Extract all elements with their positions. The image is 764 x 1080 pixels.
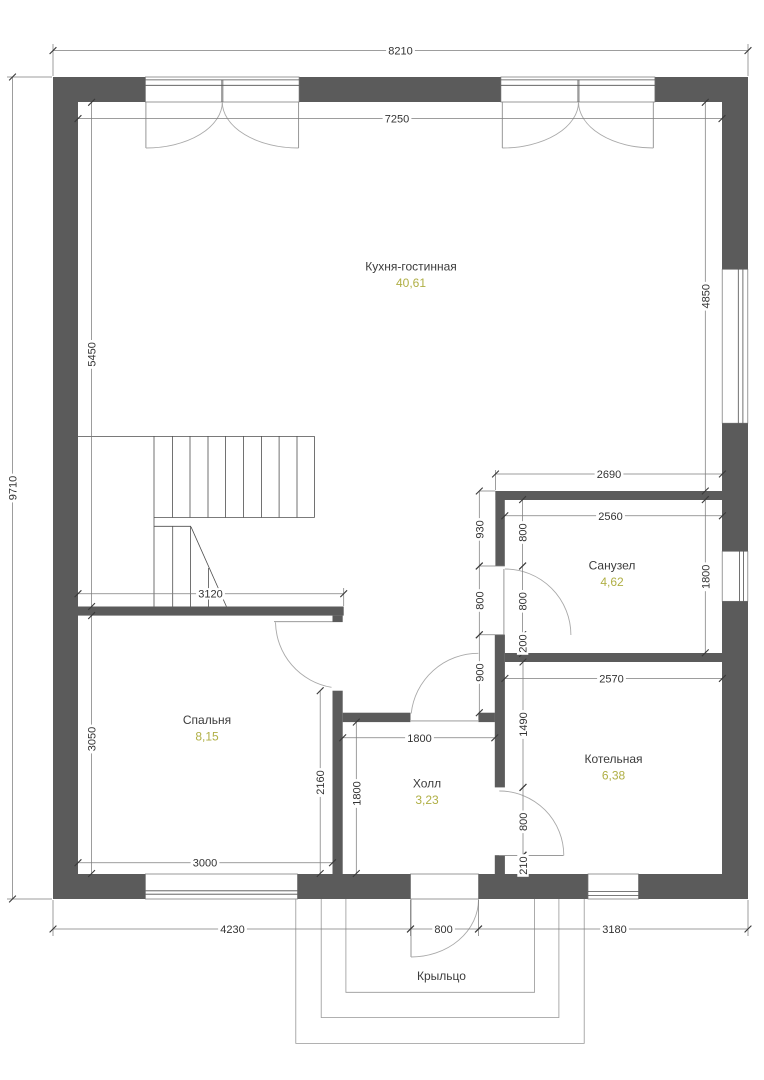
svg-text:Спальня: Спальня [183, 713, 231, 727]
svg-text:Котельная: Котельная [584, 752, 642, 766]
svg-text:2560: 2560 [598, 511, 622, 523]
svg-text:3180: 3180 [602, 924, 626, 936]
svg-text:6,38: 6,38 [602, 769, 626, 783]
svg-text:1800: 1800 [351, 781, 363, 805]
svg-text:2160: 2160 [315, 770, 327, 794]
svg-text:1490: 1490 [518, 712, 530, 736]
svg-text:800: 800 [518, 813, 530, 831]
svg-text:Санузел: Санузел [589, 559, 636, 573]
svg-text:4850: 4850 [700, 284, 712, 308]
svg-text:5450: 5450 [87, 342, 99, 366]
svg-text:Холл: Холл [413, 777, 441, 791]
svg-text:800: 800 [518, 592, 530, 610]
svg-text:800: 800 [474, 591, 486, 609]
svg-text:3120: 3120 [198, 589, 222, 601]
svg-text:8210: 8210 [388, 46, 412, 58]
svg-text:1800: 1800 [700, 565, 712, 589]
svg-text:3,23: 3,23 [415, 793, 439, 807]
svg-text:8,15: 8,15 [195, 730, 219, 744]
svg-text:2690: 2690 [597, 469, 621, 481]
svg-text:3050: 3050 [87, 727, 99, 751]
svg-text:930: 930 [474, 520, 486, 538]
svg-text:200: 200 [518, 634, 530, 652]
svg-text:210: 210 [518, 856, 530, 874]
svg-text:3000: 3000 [193, 858, 217, 870]
svg-text:800: 800 [434, 924, 452, 936]
svg-text:2570: 2570 [599, 673, 623, 685]
svg-text:900: 900 [474, 663, 486, 681]
svg-text:40,61: 40,61 [396, 276, 426, 290]
svg-text:9710: 9710 [8, 476, 20, 500]
svg-text:4230: 4230 [220, 924, 244, 936]
svg-text:Кухня-гостинная: Кухня-гостинная [365, 260, 457, 274]
svg-text:7250: 7250 [385, 114, 409, 126]
svg-text:Крыльцо: Крыльцо [417, 969, 466, 983]
svg-text:1800: 1800 [407, 733, 431, 745]
svg-text:800: 800 [518, 523, 530, 541]
svg-text:4,62: 4,62 [600, 575, 624, 589]
